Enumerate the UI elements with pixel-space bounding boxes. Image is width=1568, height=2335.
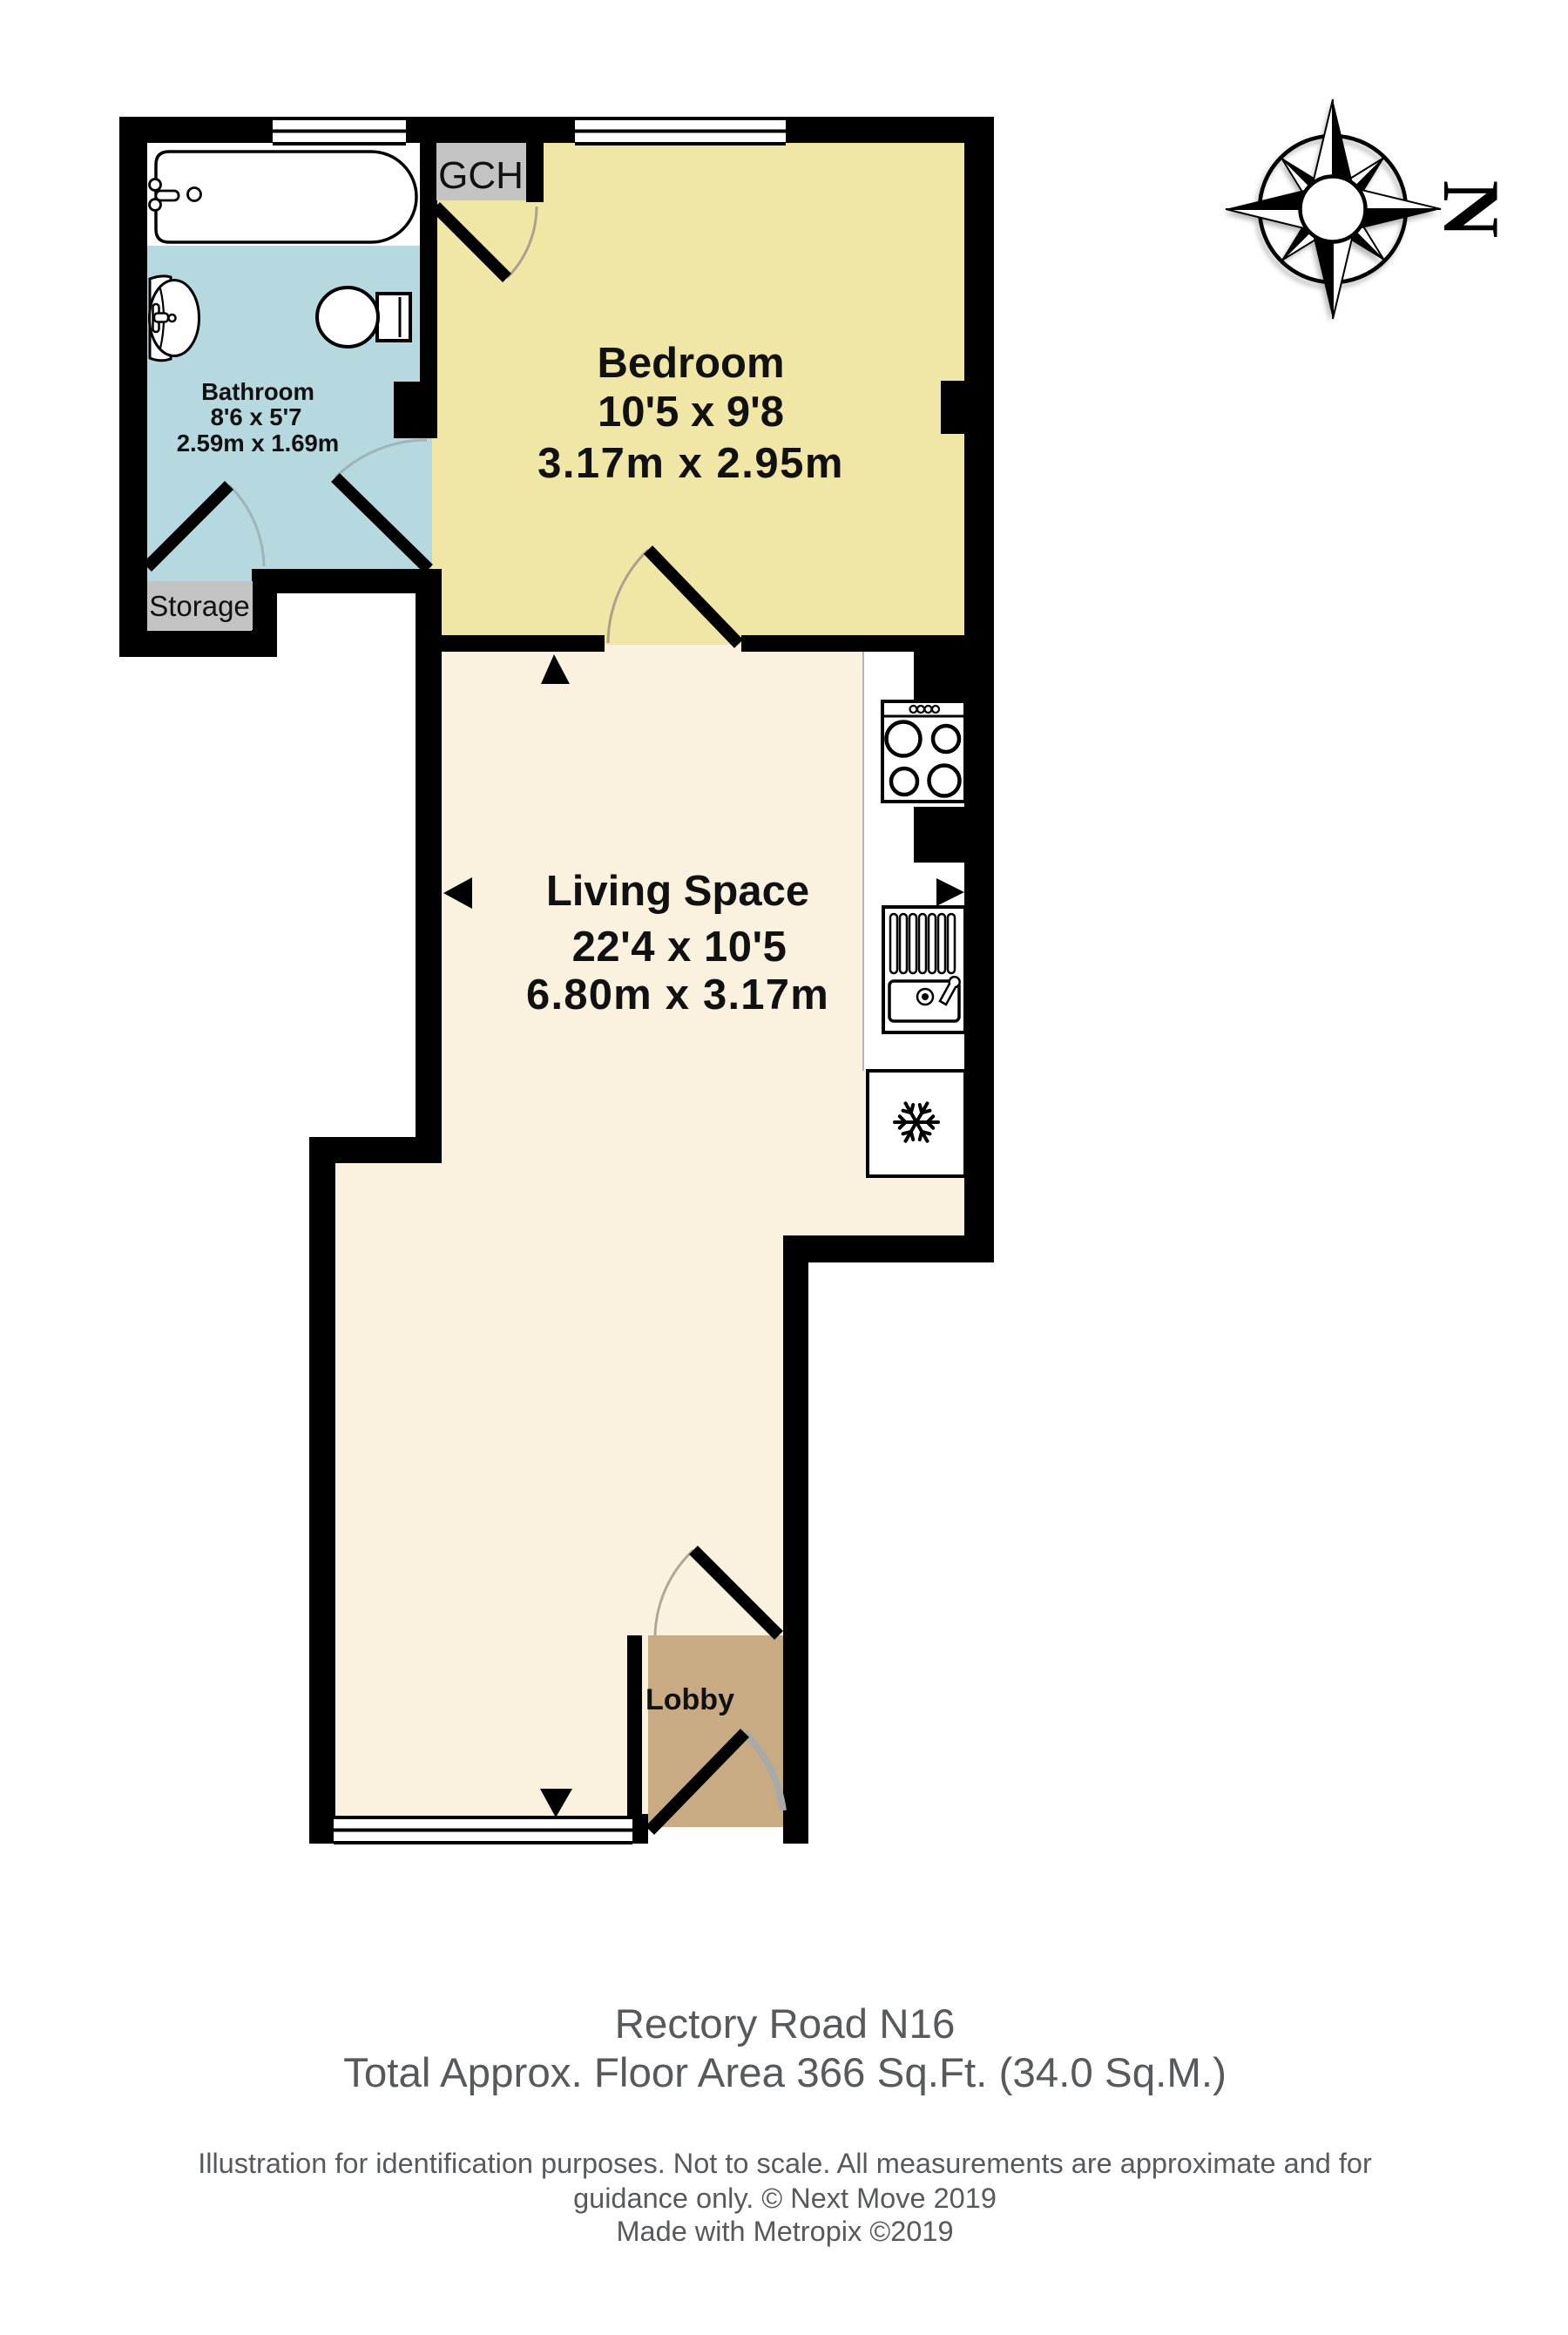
svg-text:Rectory Road N16: Rectory Road N16 <box>615 2001 956 2047</box>
svg-text:Bathroom: Bathroom <box>201 378 314 405</box>
svg-text:Living Space: Living Space <box>546 868 809 915</box>
svg-text:Illustration for identificatio: Illustration for identification purposes… <box>198 2148 1372 2179</box>
svg-text:8'6 x 5'7: 8'6 x 5'7 <box>211 403 302 430</box>
svg-text:6.80m x 3.17m: 6.80m x 3.17m <box>526 971 829 1019</box>
svg-text:Total Approx. Floor Area 366 S: Total Approx. Floor Area 366 Sq.Ft. (34.… <box>343 2050 1227 2096</box>
svg-text:N: N <box>1427 180 1516 238</box>
svg-text:22'4 x 10'5: 22'4 x 10'5 <box>572 924 787 971</box>
svg-text:Made with Metropix ©2019: Made with Metropix ©2019 <box>616 2216 953 2247</box>
svg-text:GCH: GCH <box>438 154 524 197</box>
svg-text:3.17m x 2.95m: 3.17m x 2.95m <box>537 440 844 487</box>
svg-text:10'5 x 9'8: 10'5 x 9'8 <box>598 389 784 436</box>
svg-text:2.59m x 1.69m: 2.59m x 1.69m <box>177 430 340 457</box>
svg-text:guidance only. © Next Move 201: guidance only. © Next Move 2019 <box>573 2183 997 2214</box>
svg-text:Bedroom: Bedroom <box>597 340 784 387</box>
svg-text:Lobby: Lobby <box>645 1683 734 1716</box>
svg-text:Storage: Storage <box>149 590 250 622</box>
